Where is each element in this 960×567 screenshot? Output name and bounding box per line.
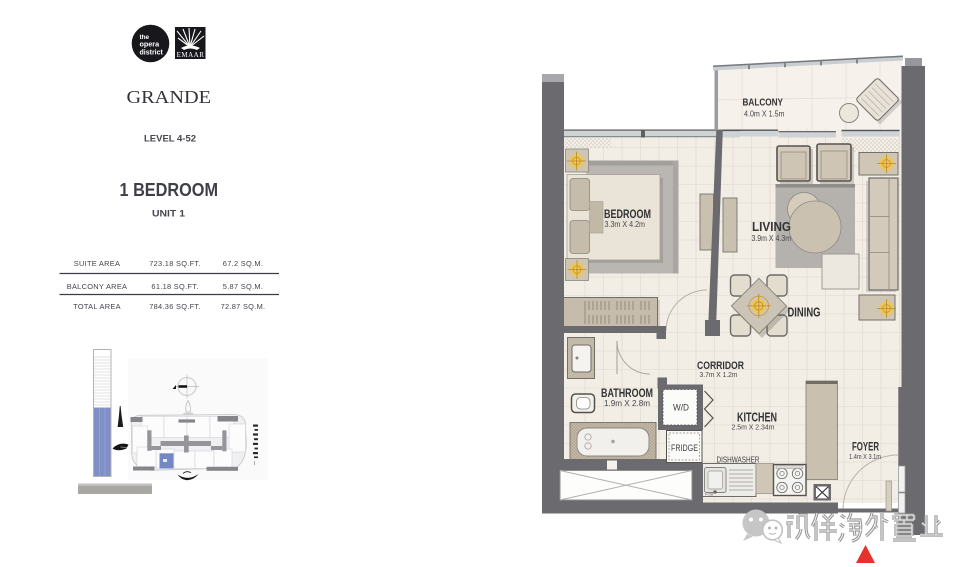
svg-text:district: district — [140, 50, 164, 57]
svg-text:UNIT 1: UNIT 1 — [152, 209, 185, 219]
svg-text:1.9m X 2.8m: 1.9m X 2.8m — [604, 399, 650, 408]
svg-text:784.36 SQ.FT.: 784.36 SQ.FT. — [149, 302, 201, 311]
svg-text:DINING: DINING — [788, 305, 821, 319]
svg-text:BALCONY: BALCONY — [743, 97, 784, 109]
svg-text:TOTAL AREA: TOTAL AREA — [73, 302, 121, 311]
svg-text:3.7m X 1.2m: 3.7m X 1.2m — [700, 370, 738, 379]
svg-text:LIVING: LIVING — [752, 220, 791, 234]
svg-text:4.0m X 1.5m: 4.0m X 1.5m — [744, 110, 785, 119]
svg-text:67.2 SQ.M.: 67.2 SQ.M. — [223, 259, 263, 268]
svg-text:3.9m X 4.3m: 3.9m X 4.3m — [752, 234, 792, 243]
svg-text:72.87 SQ.M.: 72.87 SQ.M. — [221, 302, 266, 311]
svg-text:61.18 SQ.FT.: 61.18 SQ.FT. — [151, 282, 198, 291]
svg-text:BATHROOM: BATHROOM — [601, 386, 653, 400]
svg-text:FOYER: FOYER — [852, 440, 879, 454]
svg-text:BEDROOM: BEDROOM — [604, 207, 651, 221]
svg-text:EMAAR: EMAAR — [177, 51, 205, 59]
svg-text:5.87 SQ.M.: 5.87 SQ.M. — [223, 282, 263, 291]
svg-text:DISHWASHER: DISHWASHER — [717, 456, 760, 465]
svg-text:1.4m X 3.1m: 1.4m X 3.1m — [849, 454, 881, 461]
svg-text:GRANDE: GRANDE — [127, 87, 212, 107]
svg-text:FRIDGE: FRIDGE — [671, 443, 698, 453]
svg-text:1 BEDROOM: 1 BEDROOM — [120, 179, 219, 200]
svg-text:3.3m X 4.2m: 3.3m X 4.2m — [605, 220, 646, 229]
svg-text:opera: opera — [140, 40, 161, 49]
svg-text:FOB: FOB — [705, 492, 714, 497]
svg-text:BALCONY AREA: BALCONY AREA — [67, 282, 128, 291]
svg-text:W/D: W/D — [673, 403, 689, 413]
svg-text:LEVEL 4-52: LEVEL 4-52 — [144, 134, 196, 144]
svg-text:2.5m X 2.34m: 2.5m X 2.34m — [732, 423, 775, 432]
svg-text:723.18 SQ.FT.: 723.18 SQ.FT. — [149, 259, 201, 268]
svg-text:SUITE AREA: SUITE AREA — [74, 259, 121, 268]
